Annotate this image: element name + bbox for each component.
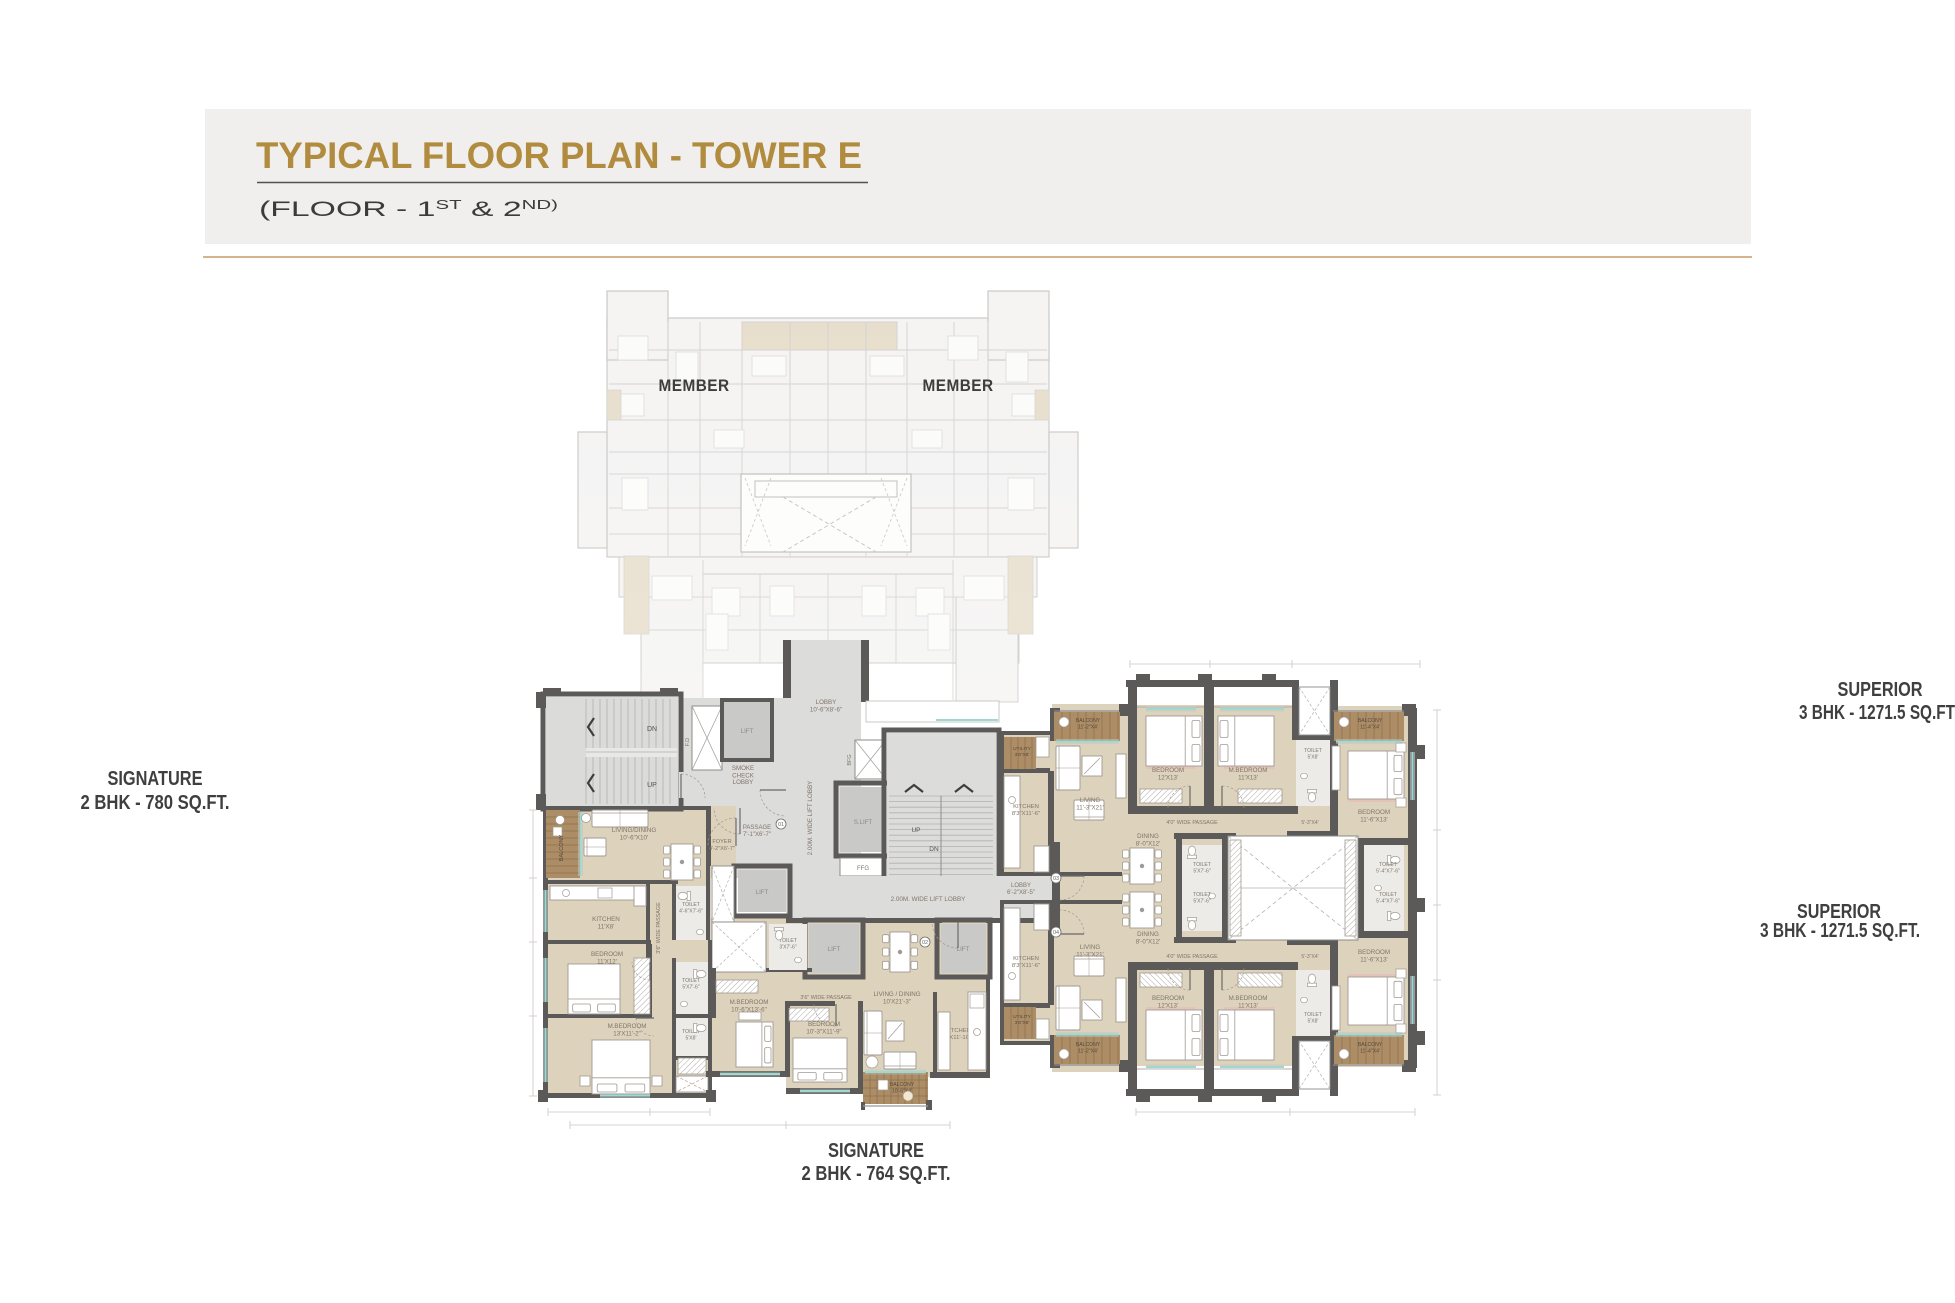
svg-text:PASSAGE: PASSAGE [743, 825, 771, 831]
svg-text:4'-6"X7'-6": 4'-6"X7'-6" [679, 908, 703, 914]
svg-text:10'-6"X8'-6": 10'-6"X8'-6" [810, 706, 842, 713]
svg-text:10'-6"X10': 10'-6"X10' [620, 835, 648, 842]
svg-text:LIVING: LIVING [1080, 797, 1100, 804]
svg-text:8'3"X11'-6": 8'3"X11'-6" [1012, 963, 1040, 969]
svg-text:LOBBY: LOBBY [733, 779, 754, 786]
svg-text:BFG: BFG [847, 754, 853, 765]
svg-text:TOILET: TOILET [1304, 748, 1322, 754]
svg-text:11'-2"X4': 11'-2"X4' [1078, 1048, 1098, 1054]
svg-text:(FLOOR - 1ST & 2ND): (FLOOR - 1ST & 2ND) [259, 197, 558, 221]
svg-text:04: 04 [1053, 930, 1059, 936]
svg-text:3'6" WIDE PASSAGE: 3'6" WIDE PASSAGE [800, 995, 852, 1001]
svg-text:11'-6"X13': 11'-6"X13' [1360, 956, 1388, 963]
svg-text:13'X11'-2": 13'X11'-2" [613, 1030, 641, 1037]
svg-text:11'-2"X4': 11'-2"X4' [1078, 724, 1098, 730]
svg-text:KITCHEN: KITCHEN [592, 916, 620, 923]
svg-text:7'-1"X6'-7": 7'-1"X6'-7" [743, 832, 771, 838]
svg-text:DINING: DINING [1137, 833, 1159, 840]
svg-text:TOILET: TOILET [1193, 862, 1211, 868]
svg-text:TOILET: TOILET [1379, 862, 1397, 868]
svg-text:KITCHEN: KITCHEN [1013, 956, 1039, 962]
svg-text:2.00M. WIDE LIFT LOBBY: 2.00M. WIDE LIFT LOBBY [891, 896, 967, 903]
svg-text:11'-4"X4': 11'-4"X4' [1360, 724, 1380, 730]
svg-text:3 BHK - 1271.5 SQ.FT: 3 BHK - 1271.5 SQ.FT [1799, 702, 1955, 724]
svg-text:DN: DN [929, 846, 939, 853]
svg-text:11'-3"X21': 11'-3"X21' [1076, 804, 1104, 811]
svg-text:11'-3"X21': 11'-3"X21' [1076, 951, 1104, 958]
svg-text:11'X8': 11'X8' [598, 924, 615, 931]
svg-text:8'3"X11'-6": 8'3"X11'-6" [1012, 811, 1040, 817]
svg-text:BALCONY: BALCONY [559, 834, 565, 861]
svg-text:SIGNATURE: SIGNATURE [828, 1140, 924, 1162]
svg-text:M.BEDROOM: M.BEDROOM [730, 999, 769, 1006]
svg-text:2.00M. WIDE LIFT LOBBY: 2.00M. WIDE LIFT LOBBY [807, 780, 814, 856]
svg-text:LIVING/DINING: LIVING/DINING [612, 827, 657, 834]
svg-text:SIGNATURE: SIGNATURE [108, 768, 203, 790]
svg-text:12'X13': 12'X13' [1158, 774, 1178, 781]
svg-text:TOILET: TOILET [1193, 892, 1211, 898]
svg-text:BEDROOM: BEDROOM [1358, 809, 1390, 816]
svg-text:BALCONY: BALCONY [1076, 718, 1101, 724]
svg-text:SMOKE: SMOKE [732, 765, 754, 772]
svg-text:3 BHK - 1271.5 SQ.FT.: 3 BHK - 1271.5 SQ.FT. [1760, 920, 1920, 942]
svg-text:UTILITY: UTILITY [1013, 746, 1032, 752]
svg-text:BEDROOM: BEDROOM [1358, 949, 1390, 956]
svg-text:MEMBER: MEMBER [923, 376, 994, 395]
svg-text:12'X13': 12'X13' [1158, 1002, 1178, 1009]
svg-text:TOILET: TOILET [779, 938, 797, 944]
svg-text:KITCHEN: KITCHEN [1013, 804, 1039, 810]
svg-text:DN: DN [647, 726, 657, 733]
svg-text:TOILET: TOILET [682, 978, 700, 984]
svg-text:5'X7'-6": 5'X7'-6" [1193, 898, 1211, 904]
svg-text:5'X8': 5'X8' [1307, 1018, 1318, 1024]
svg-text:5'X7'-6": 5'X7'-6" [682, 984, 700, 990]
svg-text:2 BHK - 764 SQ.FT.: 2 BHK - 764 SQ.FT. [802, 1163, 951, 1185]
svg-text:5'-3"X4': 5'-3"X4' [1301, 820, 1318, 826]
svg-text:LOBBY: LOBBY [816, 699, 837, 706]
svg-text:4'0" WIDE PASSAGE: 4'0" WIDE PASSAGE [1166, 820, 1218, 826]
svg-text:BEDROOM: BEDROOM [808, 1021, 840, 1028]
svg-text:LIFT: LIFT [741, 728, 754, 735]
svg-text:8'-0"X12': 8'-0"X12' [1136, 840, 1161, 847]
svg-text:01: 01 [778, 822, 784, 828]
svg-text:BEDROOM: BEDROOM [1152, 995, 1184, 1002]
svg-text:8'-0"X12': 8'-0"X12' [1136, 938, 1161, 945]
svg-text:LIFT: LIFT [756, 889, 769, 896]
svg-text:5'X8': 5'X8' [1307, 754, 1318, 760]
svg-text:BALCONY: BALCONY [1358, 718, 1383, 724]
svg-text:BALCONY: BALCONY [890, 1082, 915, 1088]
svg-text:M.BEDROOM: M.BEDROOM [1229, 995, 1268, 1002]
svg-text:UP: UP [911, 827, 920, 834]
svg-text:LOBBY: LOBBY [1011, 883, 1031, 889]
svg-text:FFG: FFG [857, 866, 869, 872]
svg-text:BALCONY: BALCONY [1358, 1042, 1383, 1048]
svg-text:BEDROOM: BEDROOM [591, 951, 623, 958]
svg-text:DINING: DINING [1137, 931, 1159, 938]
svg-text:10'-3"X11'-9": 10'-3"X11'-9" [806, 1028, 841, 1035]
svg-text:BALCONY: BALCONY [1076, 1042, 1101, 1048]
svg-text:02: 02 [922, 940, 928, 946]
svg-text:LIVING: LIVING [1080, 944, 1100, 951]
svg-text:6'-2"X8'-5": 6'-2"X8'-5" [1007, 890, 1035, 896]
svg-text:10'X21'-3": 10'X21'-3" [883, 998, 911, 1005]
svg-text:FOYER: FOYER [712, 839, 731, 845]
svg-text:11'-6"X13': 11'-6"X13' [1360, 816, 1388, 823]
svg-text:11'-4"X4': 11'-4"X4' [1360, 1048, 1380, 1054]
svg-text:SUPERIOR: SUPERIOR [1838, 679, 1923, 701]
svg-text:4'-2"X6'-7": 4'-2"X6'-7" [709, 846, 735, 852]
svg-text:5'-3"X4': 5'-3"X4' [1301, 954, 1318, 960]
svg-text:03: 03 [1053, 876, 1059, 882]
svg-text:3'6"X8': 3'6"X8' [1015, 752, 1030, 758]
svg-text:3'6"X8': 3'6"X8' [1015, 1020, 1030, 1026]
svg-text:11'X13': 11'X13' [1238, 774, 1258, 781]
svg-text:5'X7'-6": 5'X7'-6" [1193, 868, 1211, 874]
svg-text:LIVING / DINING: LIVING / DINING [873, 991, 920, 998]
svg-text:LIFT: LIFT [828, 946, 841, 953]
svg-text:5'-4"X7'-6": 5'-4"X7'-6" [1376, 868, 1400, 874]
svg-text:MEMBER: MEMBER [659, 376, 730, 395]
svg-text:5'X8': 5'X8' [685, 1035, 696, 1041]
svg-text:2 BHK - 780 SQ.FT.: 2 BHK - 780 SQ.FT. [81, 792, 230, 814]
svg-text:5'-4"X7'-6": 5'-4"X7'-6" [1376, 898, 1400, 904]
svg-text:BEDROOM: BEDROOM [1152, 767, 1184, 774]
svg-text:11'X13': 11'X13' [1238, 1002, 1258, 1009]
svg-text:TOILET: TOILET [1379, 892, 1397, 898]
svg-text:TOILET: TOILET [682, 902, 700, 908]
svg-text:3'X7'-6": 3'X7'-6" [779, 944, 797, 950]
svg-text:S.LIFT: S.LIFT [854, 819, 873, 826]
svg-text:M.BEDROOM: M.BEDROOM [1229, 767, 1268, 774]
svg-text:TOILET: TOILET [1304, 1012, 1322, 1018]
svg-text:4'0" WIDE PASSAGE: 4'0" WIDE PASSAGE [1166, 954, 1218, 960]
svg-text:TYPICAL FLOOR PLAN - TOWER E: TYPICAL FLOOR PLAN - TOWER E [256, 135, 862, 176]
svg-text:UTILITY: UTILITY [1013, 1014, 1032, 1020]
svg-text:F.D: F.D [685, 738, 691, 747]
svg-text:3'6" WIDE PASSAGE: 3'6" WIDE PASSAGE [656, 902, 662, 954]
svg-text:UP: UP [647, 782, 657, 789]
svg-text:M.BEDROOM: M.BEDROOM [608, 1023, 647, 1030]
